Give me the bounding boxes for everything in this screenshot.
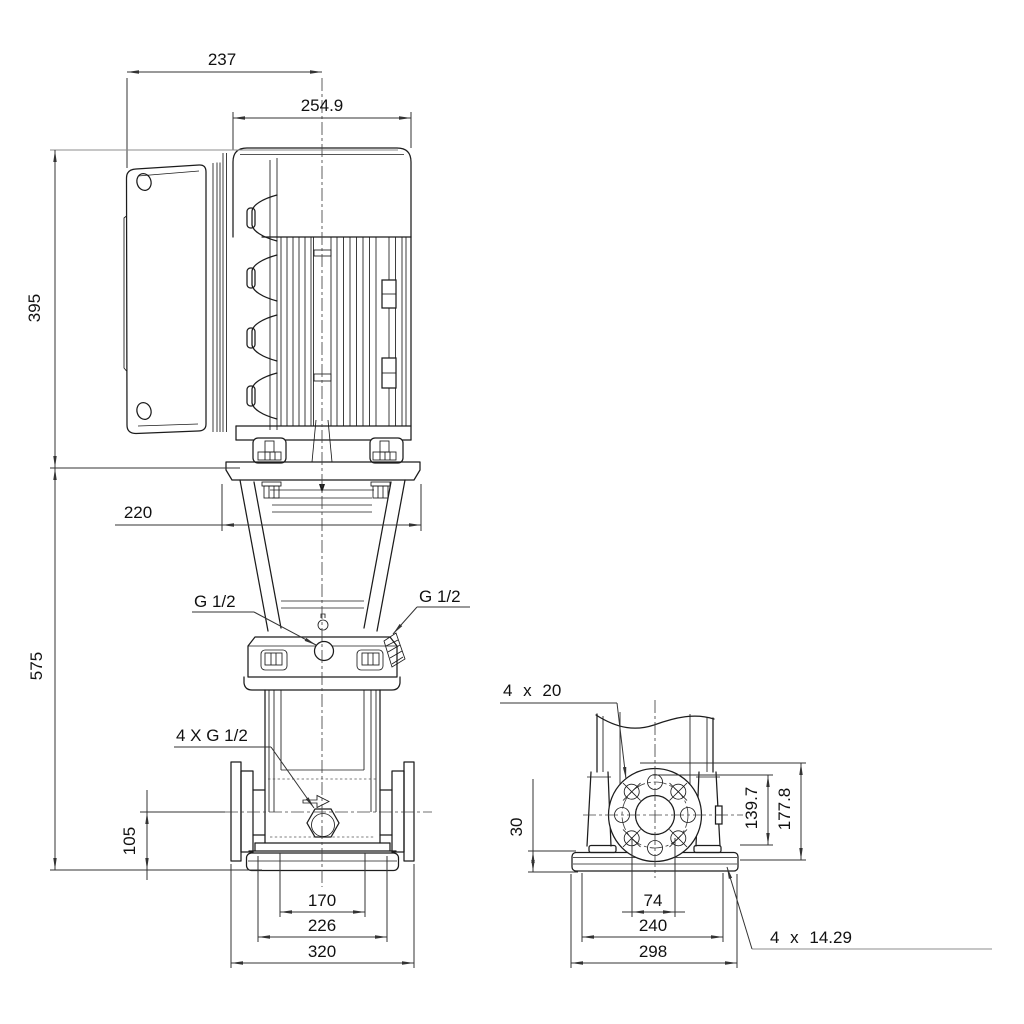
shaft-mark-top (314, 250, 331, 256)
dim-170-label: 170 (308, 891, 336, 910)
4xg12-label: 4 X G 1/2 (176, 726, 248, 745)
dim-74-label: 74 (644, 891, 663, 910)
dim-30-label: 30 (507, 818, 526, 837)
pump-base-front (247, 843, 399, 871)
pump-dimensional-drawing: 237 254.9 395 575 220 G 1/2 (0, 0, 1024, 1024)
dim-395-label: 395 (25, 294, 44, 322)
flange-right (380, 762, 414, 861)
dim-4x20-label: 4 x 20 (503, 681, 561, 700)
dim-105-label: 105 (120, 827, 139, 855)
dim-575: 575 (27, 468, 262, 870)
dim-4x14-29: 4 x 14.29 (727, 867, 992, 949)
pump-head (244, 633, 405, 690)
dim-30: 30 (507, 779, 578, 872)
drain-plug (307, 809, 339, 837)
motor-feet (253, 438, 403, 463)
port-g12-front (315, 642, 334, 661)
g12-right-label: G 1/2 (419, 587, 461, 606)
dim-220: 220 (115, 484, 421, 531)
dim-220-label: 220 (124, 503, 152, 522)
dim-395: 395 (25, 150, 398, 468)
dim-298-label: 298 (639, 942, 667, 961)
vent-screw (318, 614, 328, 630)
port-g12-side-hatched (384, 633, 405, 667)
dim-139-7-label: 139.7 (742, 787, 761, 830)
motor-stool (226, 462, 420, 631)
dim-237-label: 237 (208, 50, 236, 69)
cable-glands (247, 195, 277, 419)
dim-226-label: 226 (308, 916, 336, 935)
dim-4x14-29-label: 4 x 14.29 (770, 928, 852, 947)
dim-177-8-label: 177.8 (775, 788, 794, 831)
dim-170: 170 (280, 853, 365, 917)
label-g12-right: G 1/2 (393, 587, 470, 634)
shaft-mark-bottom (314, 374, 331, 381)
label-4xg12: 4 X G 1/2 (174, 726, 314, 808)
g12-left-label: G 1/2 (194, 592, 236, 611)
dim-575-label: 575 (27, 652, 46, 680)
side-view (572, 700, 743, 878)
dim-240-label: 240 (639, 916, 667, 935)
dim-320-label: 320 (308, 942, 336, 961)
motor-fins (281, 237, 406, 426)
dimensions: 237 254.9 395 575 220 G 1/2 (25, 50, 992, 968)
screw-hole-bottom (135, 401, 153, 421)
dim-105: 105 (120, 790, 147, 880)
dim-4x20: 4 x 20 (500, 681, 626, 779)
dim-254-9-label: 254.9 (301, 96, 344, 115)
flange-left (231, 762, 265, 861)
drawing-canvas: 237 254.9 395 575 220 G 1/2 (0, 0, 1024, 1024)
control-box (124, 153, 227, 434)
front-view (124, 78, 432, 887)
